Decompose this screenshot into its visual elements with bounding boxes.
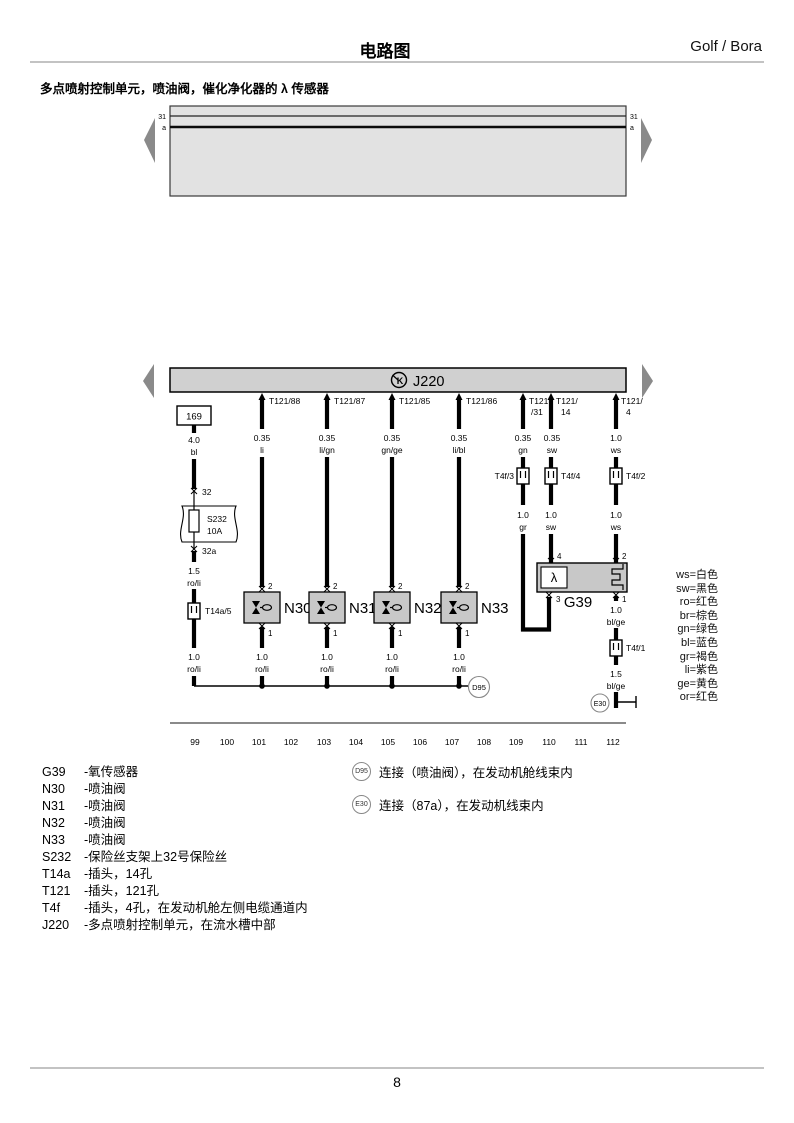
- connector-icon: [188, 603, 200, 619]
- legend-row: N30-喷油阀: [42, 781, 308, 798]
- wire-color-label: gn/ge: [381, 445, 403, 455]
- wire-color-label: ro/li: [320, 664, 334, 674]
- wire-color-label: li/gn: [319, 445, 335, 455]
- wire-arrow-icon: [520, 393, 527, 400]
- pin-label: 1: [333, 629, 338, 638]
- terminal-label: T121/88: [269, 396, 300, 406]
- fuse-icon: [189, 510, 199, 532]
- color-key-row: gr=褐色: [650, 651, 718, 665]
- ecu-bar: K J220: [143, 364, 653, 398]
- component-legend: G39-氧传感器 N30-喷油阀 N31-喷油阀 N32-喷油阀 N33-喷油阀…: [42, 764, 308, 934]
- legend-row: T4f-插头，4孔，在发动机舱左侧电缆通道内: [42, 900, 308, 917]
- track-ref-label: 169: [186, 412, 202, 423]
- track-row: 99 100 101 102 103 104 105 106 107 108 1…: [170, 723, 626, 747]
- wire-color-label: sw: [546, 522, 557, 532]
- component-desc: -插头，14孔: [84, 866, 152, 883]
- pin-label: 2: [622, 552, 627, 561]
- component-desc: -喷油阀: [84, 815, 126, 832]
- connector-icon: [517, 468, 529, 484]
- wire-color-label: ro/li: [385, 664, 399, 674]
- fuse-rating-label: 10A: [207, 526, 222, 536]
- sensor-wire-ws: T121/ 4 1.0 ws T4f/2 1.0 ws 2: [610, 393, 646, 564]
- injector-column-n33: T121/86 0.35 li/bl 2 N33 1 1.0 ro/li: [441, 393, 509, 689]
- d95-badge: D95: [352, 762, 371, 781]
- legend-row: E30 连接（87a），在发动机线束内: [352, 795, 544, 814]
- color-key-row: sw=黑色: [650, 583, 718, 597]
- component-code: T121: [42, 883, 84, 900]
- terminal-label: T121: [529, 396, 549, 406]
- connection-legend: D95 连接（喷油阀），在发动机舱线束内 E30 连接（87a），在发动机线束内: [352, 762, 752, 832]
- wire-arrow-icon: [456, 393, 463, 400]
- component-desc: -喷油阀: [84, 781, 126, 798]
- color-key-row: br=棕色: [650, 610, 718, 624]
- wiring-diagram: 31 a 31 a K J220 169 4.0 bl: [0, 0, 794, 1123]
- color-key-row: gn=绿色: [650, 623, 718, 637]
- track-number: 100: [220, 737, 234, 747]
- wire-gauge-label: 0.35: [515, 433, 532, 443]
- wire-gauge-label: 1.0: [386, 652, 398, 662]
- legend-row: N33-喷油阀: [42, 832, 308, 849]
- component-label: N30: [284, 600, 312, 617]
- track-number: 107: [445, 737, 459, 747]
- component-code: N30: [42, 781, 84, 798]
- bus-label-left-bottom: a: [162, 125, 166, 132]
- e30-label: E30: [594, 701, 607, 708]
- track-number: 99: [190, 737, 200, 747]
- track-number: 111: [575, 737, 588, 747]
- color-key-row: ws=白色: [650, 569, 718, 583]
- component-label: G39: [564, 594, 592, 611]
- fuse-junction-bottom-label: 32a: [202, 546, 216, 556]
- sensor-wire-sw: T121/ 14 0.35 sw T4f/4 1.0 sw 4: [544, 393, 581, 564]
- component-code: T4f: [42, 900, 84, 917]
- lambda-sensor-g39: λ G39 1 1.0 bl/ge T4f/1 1.5 bl/ge: [537, 563, 646, 708]
- legend-row: S232-保险丝支架上32号保险丝: [42, 849, 308, 866]
- connection-desc: 连接（87a），在发动机线束内: [379, 795, 544, 814]
- component-code: N33: [42, 832, 84, 849]
- track-number: 108: [477, 737, 491, 747]
- wire-color-label: gn: [518, 445, 528, 455]
- wire-color-label: sw: [547, 445, 558, 455]
- wire-color-key: ws=白色 sw=黑色 ro=红色 br=棕色 gn=绿色 bl=蓝色 gr=褐…: [650, 569, 718, 705]
- wire-arrow-icon: [259, 393, 266, 400]
- component-desc: -插头，4孔，在发动机舱左侧电缆通道内: [84, 900, 308, 917]
- footer-rule: [30, 1067, 764, 1069]
- wire-color-label: bl/ge: [607, 617, 626, 627]
- color-key-row: ro=红色: [650, 596, 718, 610]
- wire-gauge-label: 1.5: [188, 566, 200, 576]
- wire-color-label: ro/li: [255, 664, 269, 674]
- legend-row: D95 连接（喷油阀），在发动机舱线束内: [352, 762, 573, 781]
- track-number: 110: [542, 737, 556, 747]
- connector-label: T4f/2: [626, 471, 646, 481]
- track-number: 106: [413, 737, 427, 747]
- continuation-arrow-right-icon: [641, 118, 652, 163]
- continuation-arrow-right-icon: [642, 364, 653, 398]
- wire-gauge-label: 1.0: [517, 510, 529, 520]
- track-number: 109: [509, 737, 523, 747]
- terminal-label: 14: [561, 407, 571, 417]
- wire-gauge-label: 0.35: [254, 433, 271, 443]
- page: 电路图 Golf / Bora 多点喷射控制单元，喷油阀，催化净化器的 λ 传感…: [0, 0, 794, 1123]
- legend-row: T14a-插头，14孔: [42, 866, 308, 883]
- fuse-code-label: S232: [207, 514, 227, 524]
- track-number: 104: [349, 737, 363, 747]
- injector-column-n31: T121/87 0.35 li/gn 2 N31 1 1.0 ro/li: [309, 393, 377, 689]
- fuse-junction-top-label: 32: [202, 487, 212, 497]
- terminal-label: T121/: [556, 396, 578, 406]
- page-number: 8: [0, 1074, 794, 1090]
- pin-label: 2: [398, 582, 403, 591]
- pin-label: 1: [398, 629, 403, 638]
- component-label: N32: [414, 600, 442, 617]
- wire-arrow-icon: [324, 393, 331, 400]
- wire-arrow-icon: [613, 393, 620, 400]
- wire-gauge-label: 1.0: [545, 510, 557, 520]
- pin-label: 1: [268, 629, 273, 638]
- wire-color-label: gr: [519, 522, 527, 532]
- supply-branch: 169 4.0 bl 32 S232 10A 32a 1.5 ro/li: [177, 406, 237, 686]
- wire-color-label: bl: [191, 447, 198, 457]
- component-desc: -插头，121孔: [84, 883, 159, 900]
- pin-label: 3: [556, 595, 561, 604]
- track-number: 105: [381, 737, 395, 747]
- bus-section: 31 a 31 a: [144, 106, 652, 196]
- wire-gauge-label: 1.0: [610, 605, 622, 615]
- component-code: T14a: [42, 866, 84, 883]
- color-key-row: or=红色: [650, 691, 718, 705]
- bus-label-right-bottom: a: [630, 125, 634, 132]
- color-key-row: li=紫色: [650, 664, 718, 678]
- wire-color-label: ws: [610, 522, 621, 532]
- component-code: N31: [42, 798, 84, 815]
- legend-row: G39-氧传感器: [42, 764, 308, 781]
- component-code: G39: [42, 764, 84, 781]
- pin-label: 1: [465, 629, 470, 638]
- continuation-arrow-left-icon: [143, 364, 154, 398]
- color-key-row: ge=黄色: [650, 678, 718, 692]
- wire-gauge-label: 4.0: [188, 435, 200, 445]
- wire-gauge-label: 1.0: [610, 510, 622, 520]
- wire-color-label: ro/li: [187, 578, 201, 588]
- pin-label: 4: [557, 552, 562, 561]
- terminal-label: T121/85: [399, 396, 430, 406]
- wire-arrow-icon: [389, 393, 396, 400]
- wire-gauge-label: 1.0: [256, 652, 268, 662]
- track-number: 103: [317, 737, 331, 747]
- lambda-icon: λ: [551, 570, 558, 585]
- connector-label: T4f/4: [561, 471, 581, 481]
- wire-gauge-label: 1.5: [610, 669, 622, 679]
- injector-column-n30: T121/88 0.35 li 2 N30 1 1.0 ro/li: [244, 393, 312, 689]
- e30-badge: E30: [352, 795, 371, 814]
- legend-row: N32-喷油阀: [42, 815, 308, 832]
- wire-color-label: ro/li: [187, 664, 201, 674]
- color-key-row: bl=蓝色: [650, 637, 718, 651]
- wire-gauge-label: 1.0: [610, 433, 622, 443]
- ground-icon: [618, 696, 636, 708]
- svg-text:K: K: [397, 376, 404, 386]
- terminal-label: /31: [531, 407, 543, 417]
- wire-gauge-label: 0.35: [384, 433, 401, 443]
- component-code: N32: [42, 815, 84, 832]
- connector-label: T4f/1: [626, 643, 646, 653]
- component-desc: -保险丝支架上32号保险丝: [84, 849, 227, 866]
- component-code: S232: [42, 849, 84, 866]
- wire-color-label: bl/ge: [607, 681, 626, 691]
- connector-icon: [610, 468, 622, 484]
- d95-label: D95: [472, 683, 486, 692]
- component-desc: -氧传感器: [84, 764, 138, 781]
- connector-icon: [545, 468, 557, 484]
- legend-row: N31-喷油阀: [42, 798, 308, 815]
- connector-label: T14a/5: [205, 606, 232, 616]
- component-code: J220: [42, 917, 84, 934]
- component-label: N33: [481, 600, 509, 617]
- injector-column-n32: T121/85 0.35 gn/ge 2 N32 1 1.0 ro/li: [374, 393, 442, 689]
- pin-label: 2: [268, 582, 273, 591]
- d95-junction: D95: [469, 677, 490, 698]
- component-desc: -喷油阀: [84, 832, 126, 849]
- bus-box: [170, 106, 626, 196]
- component-desc: -多点喷射控制单元，在流水槽中部: [84, 917, 276, 934]
- ecu-label: J220: [413, 374, 444, 390]
- bus-label-right-top: 31: [630, 114, 638, 121]
- track-number: 102: [284, 737, 298, 747]
- wire-color-label: li/bl: [453, 445, 466, 455]
- wire-gauge-label: 0.35: [451, 433, 468, 443]
- e30-ground: E30: [591, 694, 636, 712]
- wire-gauge-label: 0.35: [544, 433, 561, 443]
- terminal-label: 4: [626, 407, 631, 417]
- wire-gauge-label: 1.0: [321, 652, 333, 662]
- pin-label: 2: [465, 582, 470, 591]
- component-label: N31: [349, 600, 377, 617]
- bus-label-left-top: 31: [158, 114, 166, 121]
- wire-gauge-label: 1.0: [453, 652, 465, 662]
- terminal-label: T121/86: [466, 396, 497, 406]
- terminal-label: T121/: [621, 396, 643, 406]
- connector-icon: [610, 640, 622, 656]
- legend-row: J220-多点喷射控制单元，在流水槽中部: [42, 917, 308, 934]
- connector-label: T4f/3: [495, 471, 515, 481]
- terminal-label: T121/87: [334, 396, 365, 406]
- component-desc: -喷油阀: [84, 798, 126, 815]
- legend-row: T121-插头，121孔: [42, 883, 308, 900]
- wire-color-label: ro/li: [452, 664, 466, 674]
- wire-arrow-icon: [548, 393, 555, 400]
- continuation-arrow-left-icon: [144, 118, 155, 163]
- pin-label: 2: [333, 582, 338, 591]
- wire-gauge-label: 1.0: [188, 652, 200, 662]
- track-number: 112: [606, 737, 620, 747]
- connection-desc: 连接（喷油阀），在发动机舱线束内: [379, 762, 573, 781]
- pin-label: 1: [622, 595, 627, 604]
- wire-color-label: ws: [610, 445, 621, 455]
- track-number: 101: [252, 737, 266, 747]
- wire-gauge-label: 0.35: [319, 433, 336, 443]
- wire-color-label: li: [260, 445, 264, 455]
